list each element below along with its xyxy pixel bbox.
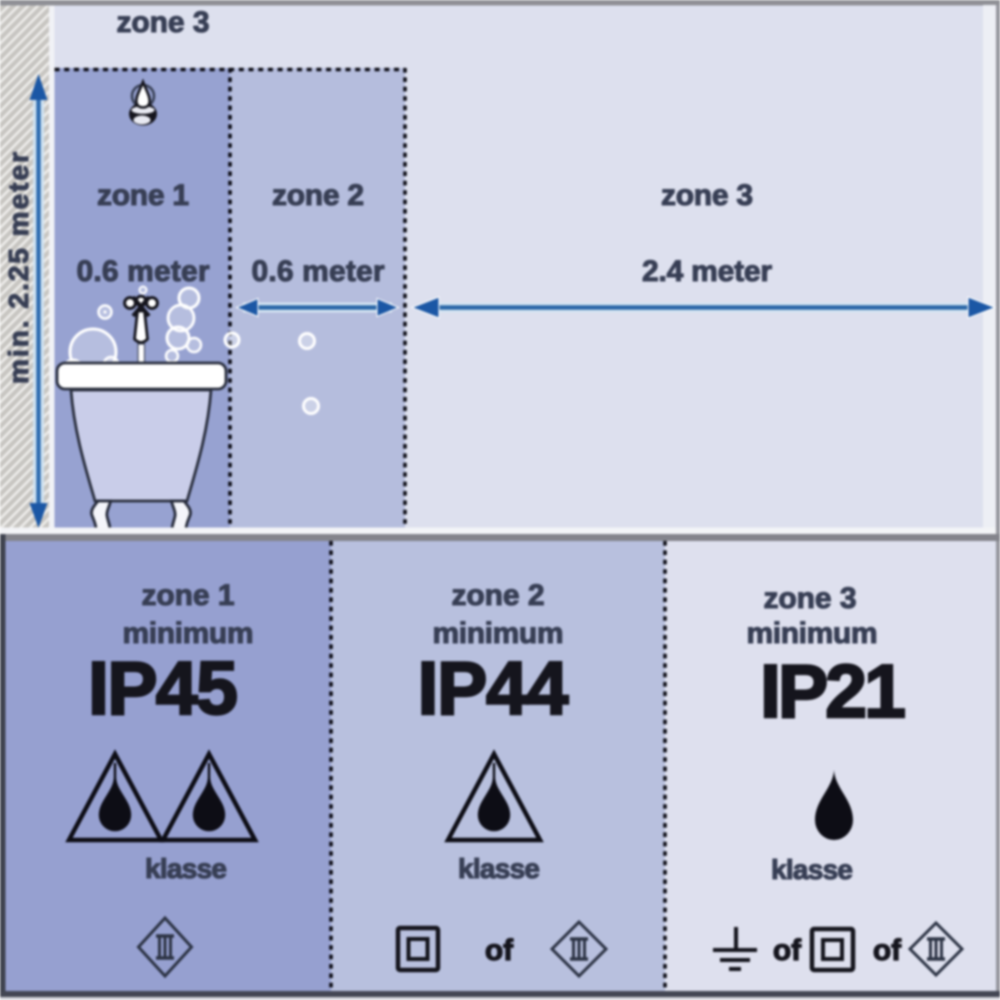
svg-text:IP45: IP45 bbox=[88, 646, 238, 730]
svg-text:zone 3: zone 3 bbox=[764, 582, 857, 615]
svg-text:klasse: klasse bbox=[458, 853, 540, 884]
svg-text:0.6 meter: 0.6 meter bbox=[252, 255, 385, 288]
svg-text:2.4 meter: 2.4 meter bbox=[642, 255, 772, 288]
svg-text:zone 3: zone 3 bbox=[117, 6, 210, 39]
svg-text:0.6 meter: 0.6 meter bbox=[77, 255, 210, 288]
svg-text:of: of bbox=[773, 934, 802, 967]
svg-text:zone 1: zone 1 bbox=[142, 579, 235, 612]
svg-text:IP21: IP21 bbox=[760, 649, 906, 733]
svg-text:of: of bbox=[873, 934, 902, 967]
svg-text:IP44: IP44 bbox=[418, 646, 569, 730]
svg-text:zone 3: zone 3 bbox=[661, 179, 753, 212]
svg-text:zone 2: zone 2 bbox=[452, 579, 545, 612]
svg-text:of: of bbox=[485, 934, 514, 967]
svg-text:minimum: minimum bbox=[747, 617, 878, 650]
svg-text:klasse: klasse bbox=[771, 854, 853, 885]
svg-text:klasse: klasse bbox=[145, 853, 227, 884]
svg-text:zone 2: zone 2 bbox=[272, 179, 364, 212]
svg-text:zone 1: zone 1 bbox=[97, 179, 189, 212]
